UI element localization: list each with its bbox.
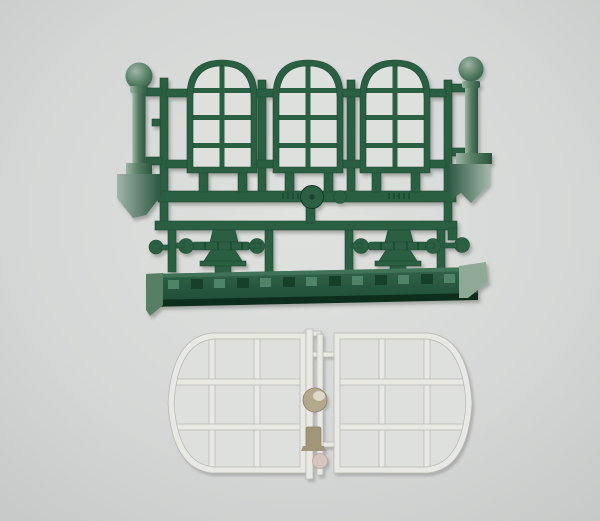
gate-cap bbox=[210, 230, 238, 242]
post-base-step bbox=[126, 163, 152, 175]
post-ball-finial bbox=[459, 57, 484, 82]
window-glass bbox=[174, 339, 300, 467]
stand-foot bbox=[200, 261, 246, 266]
connector-knob bbox=[306, 427, 321, 448]
connector-disc bbox=[303, 388, 327, 412]
stand-foot bbox=[375, 261, 421, 266]
connector-disc-highlight bbox=[313, 391, 325, 401]
post-collar bbox=[130, 86, 148, 93]
runner-boss bbox=[334, 191, 347, 204]
post-shaft bbox=[133, 93, 146, 165]
arched-window-1: Arched 8-pane window bbox=[187, 60, 257, 173]
post-collar bbox=[462, 81, 480, 88]
gate-cap bbox=[385, 230, 413, 242]
window-glass bbox=[340, 339, 466, 467]
handrail-stand bbox=[379, 250, 417, 261]
arched-window-2: Arched 8-pane window bbox=[273, 60, 343, 173]
photo-stage: Model kit sprues: dark green sprue with … bbox=[0, 0, 600, 521]
handrail-stand bbox=[204, 250, 242, 261]
connector-pink-ball bbox=[313, 454, 328, 469]
post-base-step bbox=[456, 153, 492, 164]
round-window-right: Round-edged 9-pane window frame bbox=[334, 333, 472, 473]
round-window-left: Round-edged 9-pane window frame bbox=[168, 333, 306, 473]
arched-window-3: Arched 8-pane window bbox=[360, 60, 430, 173]
white-sprue: White sprue with rounded window frames R… bbox=[168, 329, 472, 479]
connector-knob-foot bbox=[301, 446, 326, 451]
post-ball-finial bbox=[126, 63, 153, 90]
post-shaft bbox=[465, 88, 478, 153]
injection-disc-hole bbox=[309, 194, 314, 199]
